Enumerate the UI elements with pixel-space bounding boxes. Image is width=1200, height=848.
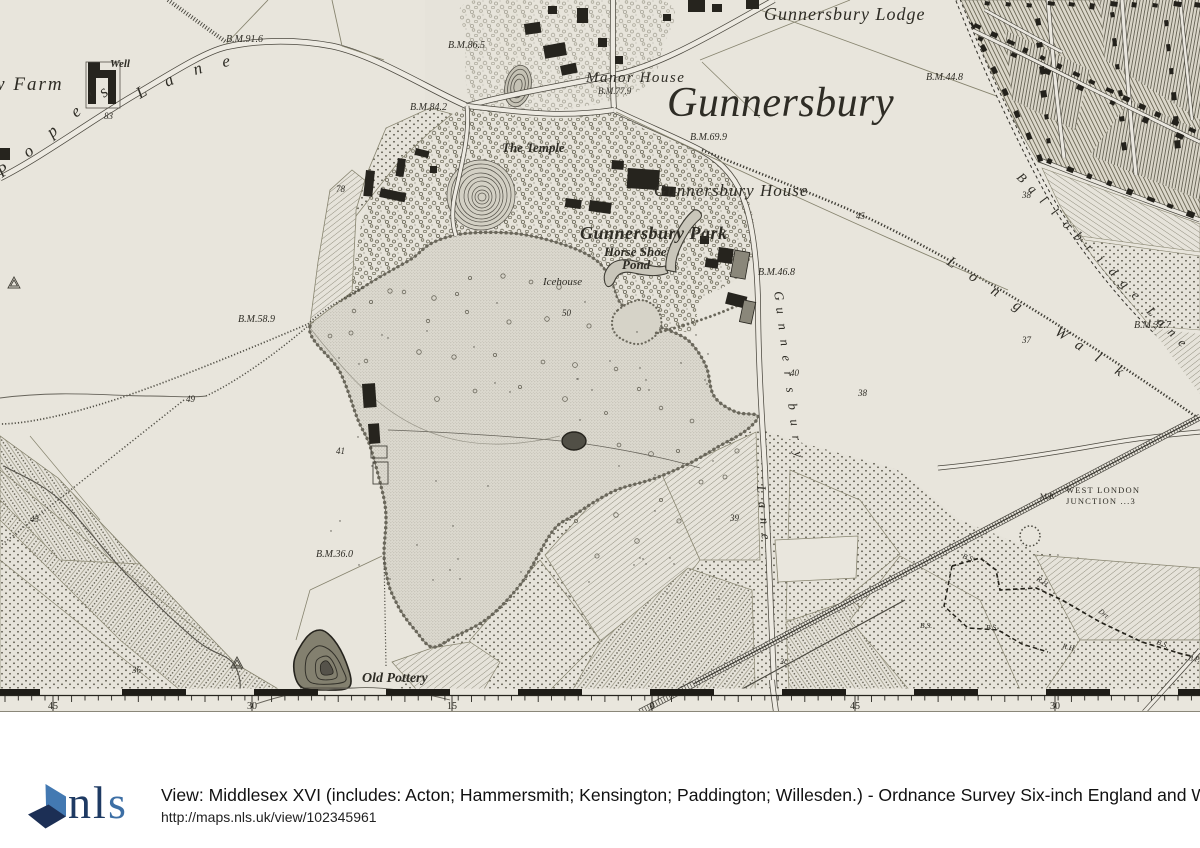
- svg-text:B.S.: B.S.: [920, 621, 932, 630]
- svg-text:L: L: [754, 484, 770, 494]
- svg-text:36: 36: [131, 665, 142, 675]
- svg-text:n: n: [757, 517, 773, 525]
- svg-text:45: 45: [30, 514, 40, 524]
- svg-text:B.M.69.9: B.M.69.9: [690, 132, 727, 143]
- svg-text:45: 45: [856, 211, 866, 221]
- svg-text:B.M.36.0: B.M.36.0: [316, 549, 353, 560]
- svg-text:Old Pottery: Old Pottery: [362, 671, 428, 686]
- svg-text:B.M.46.8: B.M.46.8: [758, 267, 795, 278]
- svg-text:B.M.84.2: B.M.84.2: [410, 102, 447, 113]
- svg-text:B.M.77.9: B.M.77.9: [598, 86, 632, 96]
- svg-text:50: 50: [562, 308, 572, 318]
- svg-text:39: 39: [729, 513, 740, 523]
- svg-text:B.M.58.9: B.M.58.9: [238, 314, 275, 325]
- svg-text:Gunnersbury: Gunnersbury: [667, 80, 894, 126]
- svg-text:38: 38: [857, 388, 868, 398]
- svg-text:Gunnersbury House: Gunnersbury House: [654, 181, 808, 200]
- svg-text:49: 49: [186, 394, 196, 404]
- svg-text:41: 41: [336, 446, 345, 456]
- svg-text:B.S.: B.S.: [986, 623, 998, 632]
- svg-text:JUNCTION ...3: JUNCTION ...3: [1066, 496, 1136, 506]
- svg-text:The Temple: The Temple: [502, 140, 565, 155]
- svg-text:nl: nl: [68, 777, 108, 828]
- svg-text:Pond: Pond: [622, 257, 651, 272]
- svg-text:Gunnersbury Park: Gunnersbury Park: [580, 223, 728, 243]
- svg-text:Manor House: Manor House: [585, 70, 685, 86]
- svg-text:M.P.: M.P.: [1040, 492, 1055, 501]
- svg-text:B.M.44.8: B.M.44.8: [926, 72, 963, 83]
- svg-text:w Farm: w Farm: [0, 74, 64, 95]
- svg-text:B.M.86.5: B.M.86.5: [448, 40, 485, 51]
- svg-text:s: s: [108, 777, 126, 828]
- svg-text:WEST LONDON: WEST LONDON: [1066, 485, 1140, 495]
- svg-text:83: 83: [104, 111, 114, 121]
- svg-text:B.M.91.6: B.M.91.6: [226, 34, 263, 45]
- svg-text:37: 37: [1021, 335, 1032, 345]
- svg-text:Icehouse: Icehouse: [542, 276, 582, 288]
- svg-text:3c: 3c: [779, 657, 788, 666]
- svg-text:Well: Well: [110, 58, 131, 70]
- svg-text:78: 78: [336, 184, 346, 194]
- svg-text:Gunnersbury Lodge: Gunnersbury Lodge: [764, 4, 926, 24]
